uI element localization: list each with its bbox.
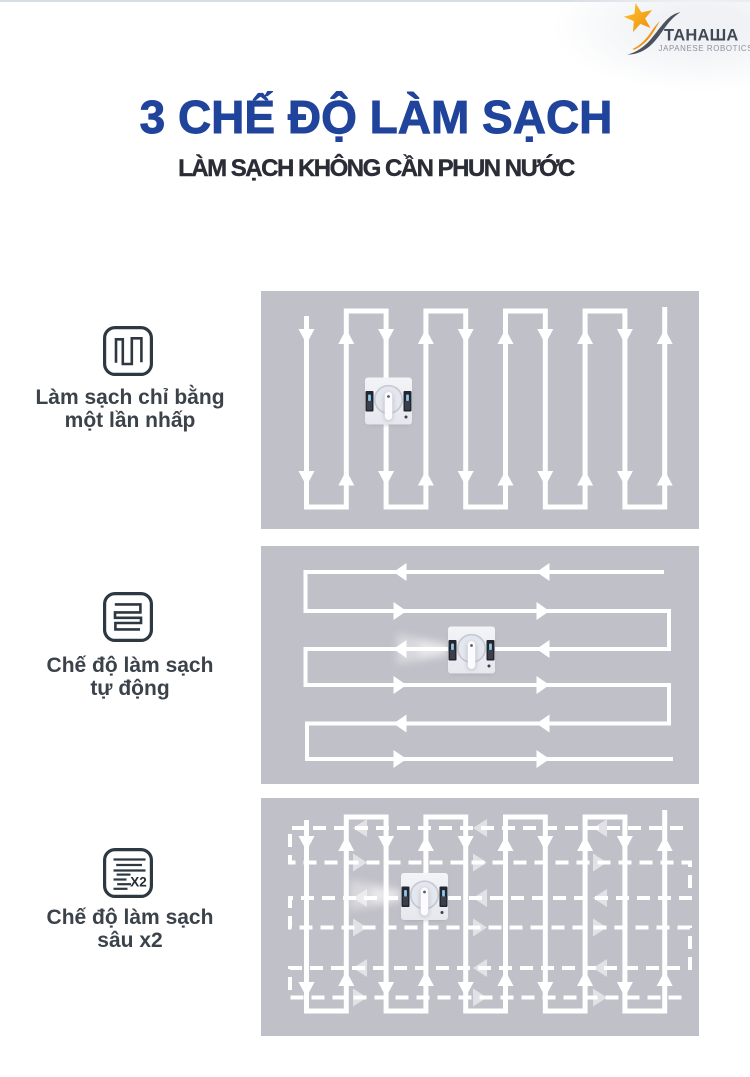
svg-text:X2: X2 bbox=[130, 875, 147, 890]
svg-text:JAPANESE ROBOTICS: JAPANESE ROBOTICS bbox=[659, 44, 750, 53]
svg-text:ТАНАША: ТАНАША bbox=[664, 26, 738, 44]
